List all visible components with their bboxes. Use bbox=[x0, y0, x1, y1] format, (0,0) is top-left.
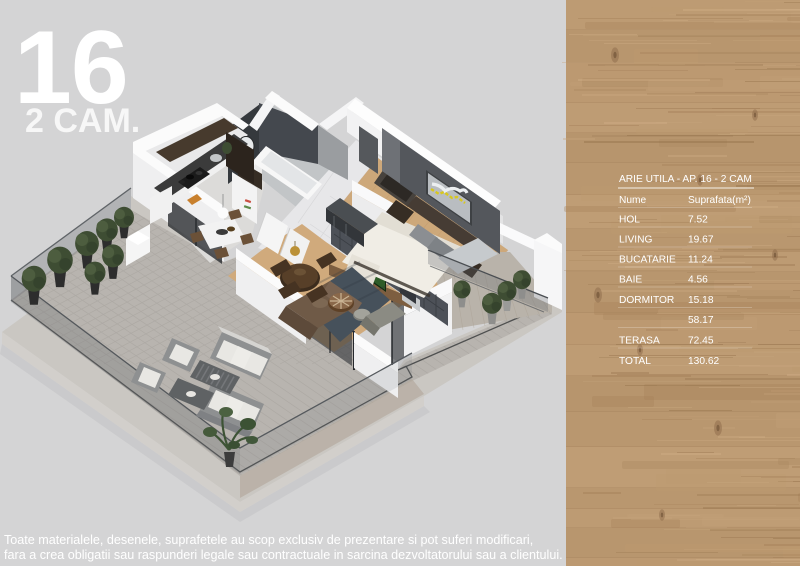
svg-text:LIVING: LIVING bbox=[619, 235, 652, 246]
svg-text:DORMITOR: DORMITOR bbox=[619, 295, 674, 306]
svg-text:fara a crea obligatii sau rasp: fara a crea obligatii sau raspunderi leg… bbox=[4, 548, 563, 562]
svg-text:15.18: 15.18 bbox=[688, 295, 714, 306]
svg-text:11.24: 11.24 bbox=[688, 255, 713, 266]
svg-text:BAIE: BAIE bbox=[619, 275, 642, 286]
svg-text:ARIE UTILA - AP. 16 - 2 CAM: ARIE UTILA - AP. 16 - 2 CAM bbox=[619, 174, 752, 185]
svg-text:Toate materialele, desenele, s: Toate materialele, desenele, suprafetele… bbox=[4, 533, 533, 547]
svg-text:TERASA: TERASA bbox=[619, 336, 660, 347]
svg-text:BUCATARIE: BUCATARIE bbox=[619, 255, 676, 266]
svg-text:72.45: 72.45 bbox=[688, 336, 714, 347]
svg-text:Suprafata(m²): Suprafata(m²) bbox=[688, 195, 751, 206]
svg-text:7.52: 7.52 bbox=[688, 215, 708, 226]
svg-text:Nume: Nume bbox=[619, 195, 647, 206]
svg-text:2 CAM.: 2 CAM. bbox=[25, 102, 140, 140]
svg-text:58.17: 58.17 bbox=[688, 315, 714, 326]
svg-text:HOL: HOL bbox=[619, 215, 640, 226]
svg-text:TOTAL: TOTAL bbox=[619, 356, 651, 367]
svg-text:19.67: 19.67 bbox=[688, 235, 714, 246]
svg-text:4.56: 4.56 bbox=[688, 275, 708, 286]
svg-text:130.62: 130.62 bbox=[688, 356, 719, 367]
